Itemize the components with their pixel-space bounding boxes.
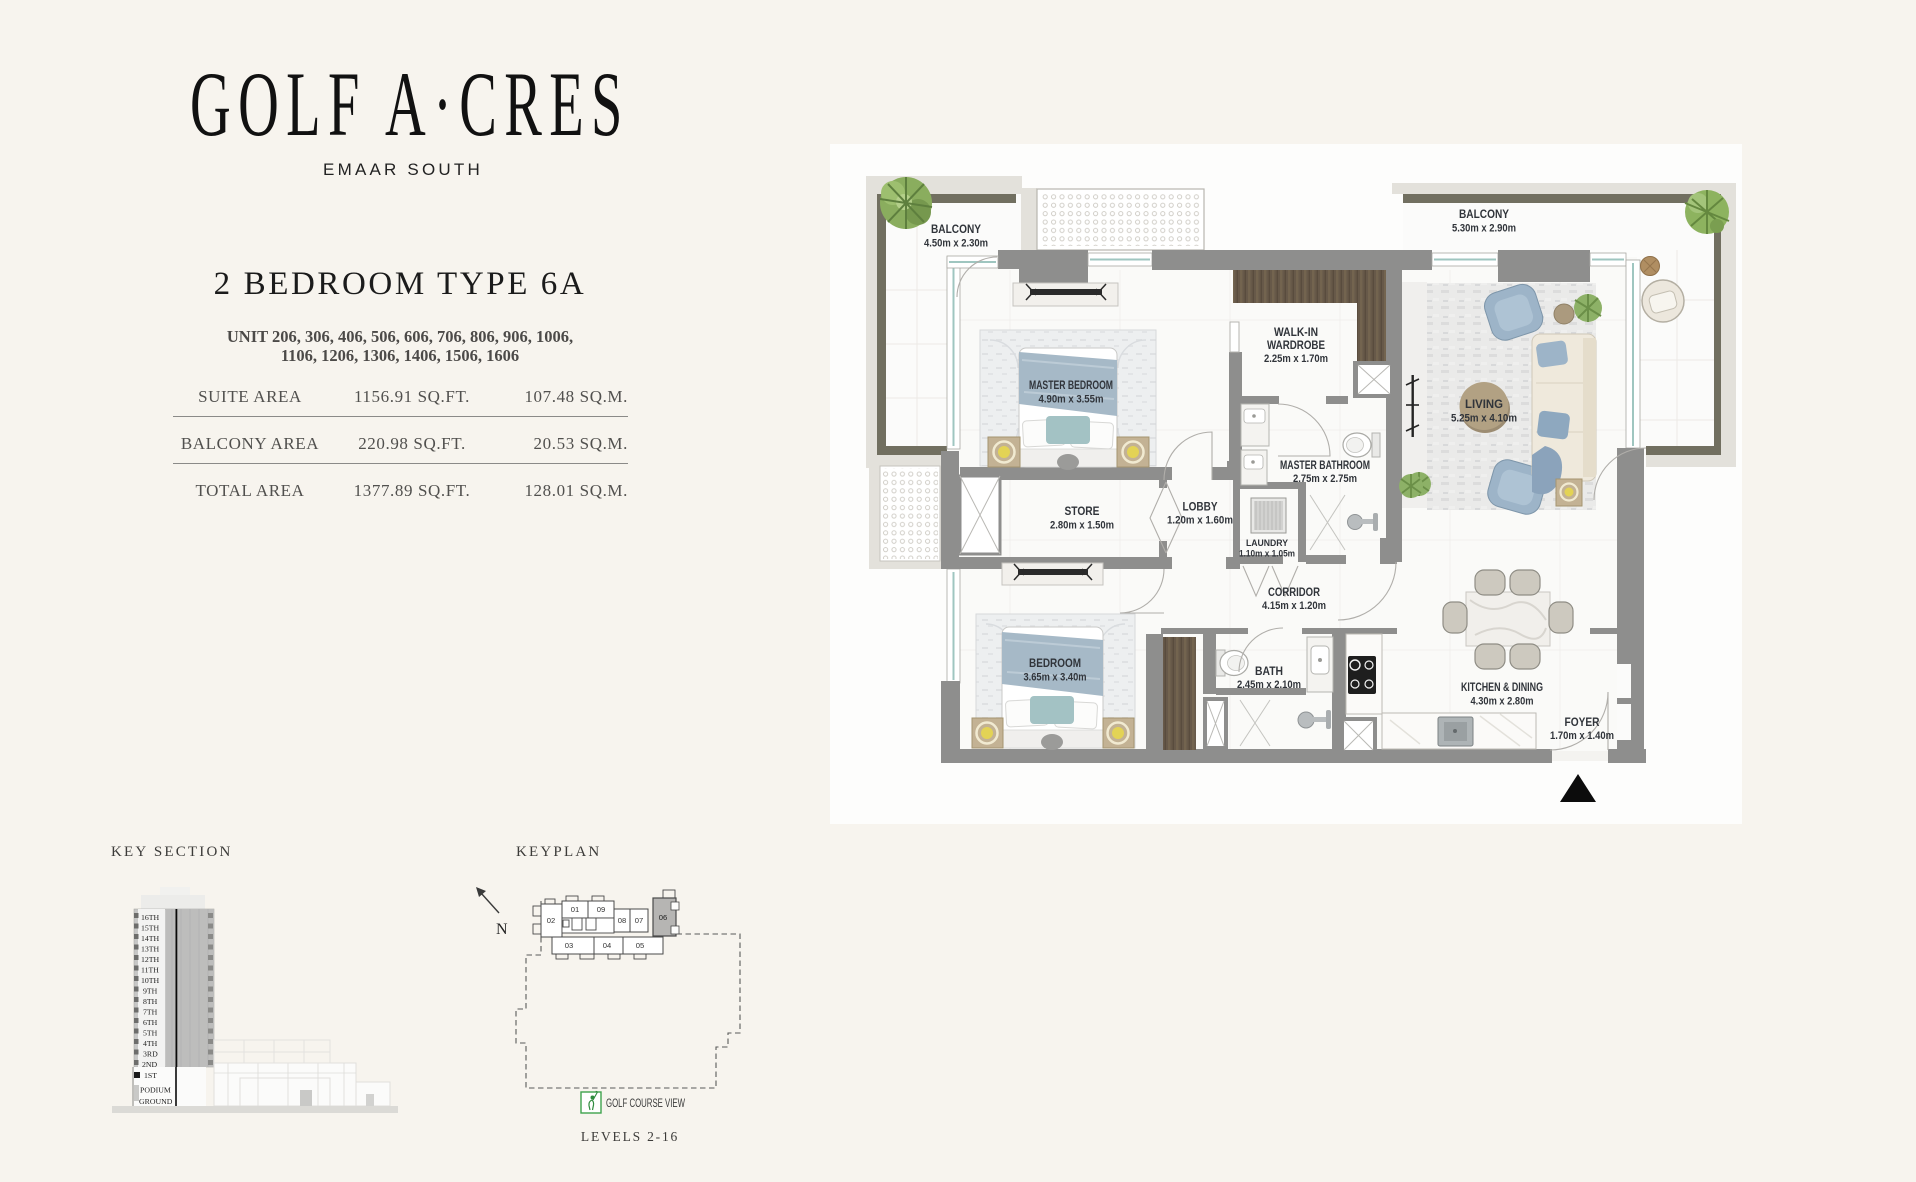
svg-text:2.45m x 2.10m: 2.45m x 2.10m — [1237, 679, 1301, 691]
svg-text:8TH: 8TH — [143, 997, 158, 1006]
svg-text:13TH: 13TH — [141, 945, 160, 954]
svg-text:03: 03 — [565, 941, 573, 950]
svg-text:2.75m x 2.75m: 2.75m x 2.75m — [1293, 473, 1357, 485]
svg-text:2.25m x 1.70m: 2.25m x 1.70m — [1264, 353, 1328, 365]
svg-text:3.65m x 3.40m: 3.65m x 3.40m — [1024, 672, 1087, 684]
svg-text:WALK-IN: WALK-IN — [1274, 327, 1318, 339]
svg-text:07: 07 — [635, 916, 643, 925]
svg-text:6TH: 6TH — [143, 1018, 158, 1027]
svg-text:2.80m x 1.50m: 2.80m x 1.50m — [1050, 520, 1114, 532]
svg-text:05: 05 — [636, 941, 644, 950]
svg-text:5.25m x 4.10m: 5.25m x 4.10m — [1451, 413, 1517, 425]
svg-text:3RD: 3RD — [143, 1050, 158, 1059]
svg-text:1ST: 1ST — [144, 1071, 157, 1080]
svg-text:02: 02 — [547, 916, 555, 925]
svg-text:12TH: 12TH — [141, 955, 160, 964]
svg-text:9TH: 9TH — [143, 987, 158, 996]
svg-text:KITCHEN & DINING: KITCHEN & DINING — [1461, 682, 1543, 694]
svg-text:7TH: 7TH — [143, 1008, 158, 1017]
svg-text:1.70m x 1.40m: 1.70m x 1.40m — [1550, 730, 1614, 742]
svg-text:GROUND: GROUND — [139, 1097, 173, 1106]
svg-text:1.20m x 1.60m: 1.20m x 1.60m — [1167, 515, 1233, 527]
svg-text:STORE: STORE — [1065, 506, 1100, 518]
svg-text:04: 04 — [603, 941, 611, 950]
svg-text:N: N — [496, 921, 508, 938]
svg-text:4.15m x 1.20m: 4.15m x 1.20m — [1262, 600, 1326, 612]
svg-text:5.30m x 2.90m: 5.30m x 2.90m — [1452, 223, 1516, 235]
svg-text:MASTER BATHROOM: MASTER BATHROOM — [1280, 460, 1370, 472]
svg-text:15TH: 15TH — [141, 924, 160, 933]
svg-text:GOLF COURSE VIEW: GOLF COURSE VIEW — [606, 1098, 685, 1110]
svg-text:09: 09 — [597, 905, 605, 914]
svg-text:LAUNDRY: LAUNDRY — [1246, 538, 1289, 549]
svg-text:4.90m x 3.55m: 4.90m x 3.55m — [1039, 394, 1104, 406]
svg-text:01: 01 — [571, 905, 579, 914]
svg-text:FOYER: FOYER — [1565, 717, 1601, 729]
svg-text:PODIUM: PODIUM — [140, 1086, 171, 1095]
svg-text:CORRIDOR: CORRIDOR — [1268, 587, 1321, 599]
svg-text:10TH: 10TH — [141, 976, 160, 985]
svg-text:LIVING: LIVING — [1465, 399, 1503, 411]
svg-text:4TH: 4TH — [143, 1039, 158, 1048]
svg-text:4.30m x 2.80m: 4.30m x 2.80m — [1471, 696, 1534, 708]
svg-text:06: 06 — [659, 913, 667, 922]
svg-text:5TH: 5TH — [143, 1029, 158, 1038]
svg-text:1.10m x 1.05m: 1.10m x 1.05m — [1239, 549, 1295, 559]
svg-text:BEDROOM: BEDROOM — [1029, 658, 1081, 670]
svg-text:BALCONY: BALCONY — [931, 224, 981, 236]
svg-text:MASTER BEDROOM: MASTER BEDROOM — [1029, 380, 1113, 392]
svg-text:BATH: BATH — [1255, 666, 1283, 678]
svg-text:08: 08 — [618, 916, 626, 925]
svg-text:LOBBY: LOBBY — [1183, 502, 1218, 514]
svg-text:WARDROBE: WARDROBE — [1267, 340, 1325, 352]
svg-text:BALCONY: BALCONY — [1459, 209, 1509, 221]
svg-text:16TH: 16TH — [141, 913, 160, 922]
svg-text:4.50m x 2.30m: 4.50m x 2.30m — [924, 238, 988, 250]
svg-text:11TH: 11TH — [141, 966, 159, 975]
svg-text:14TH: 14TH — [141, 934, 160, 943]
svg-text:2ND: 2ND — [142, 1060, 158, 1069]
